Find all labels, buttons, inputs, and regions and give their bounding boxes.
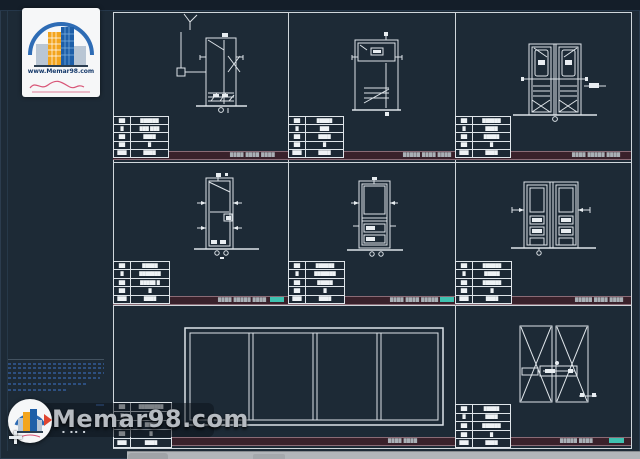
table-row: ████████ xyxy=(114,269,169,277)
table-value-cell: ██████ xyxy=(473,279,511,286)
table-row: ███████ xyxy=(456,405,510,413)
table-key-cell: ███ xyxy=(289,296,306,303)
table-key-cell: ██ xyxy=(456,422,473,430)
table-value-cell: ██████ xyxy=(473,422,510,430)
sheet-border-line xyxy=(113,448,632,449)
table-row: ████████ xyxy=(456,262,511,269)
sheet-border-line xyxy=(113,12,114,449)
table-value-cell: ███ xyxy=(306,125,343,132)
table-value-cell: ████ xyxy=(473,125,510,132)
table-row: ██████ xyxy=(456,269,511,277)
table-key-cell: █ xyxy=(456,414,473,422)
table-value-cell: █████ █ xyxy=(131,279,169,286)
table-key-cell: █ xyxy=(114,270,131,277)
table-row: ███████ █ xyxy=(114,278,169,286)
table-value-cell: ████ xyxy=(473,296,511,303)
table-key-cell: █ xyxy=(456,270,473,277)
sheet-border-line xyxy=(113,12,632,13)
schedule-row xyxy=(8,372,104,374)
watermark-specks: ▪ ▪▪ ▪ xyxy=(62,429,87,434)
table-value-cell: ████ xyxy=(473,439,510,447)
table-key-cell: █ xyxy=(289,270,306,277)
table-key-cell: ███ xyxy=(456,439,473,447)
table-key-cell: ██ xyxy=(289,142,306,149)
table-key-cell: ██ xyxy=(114,262,131,269)
table-key-cell: ██ xyxy=(114,287,131,294)
schedule-row xyxy=(8,389,68,391)
table-row: ███████ xyxy=(114,438,171,447)
table-key-cell: ██ xyxy=(114,133,131,140)
highlight-block xyxy=(270,297,284,302)
table-value-cell: █████ xyxy=(131,262,169,269)
table-row: █████ xyxy=(456,413,510,422)
table-value-cell: ████ xyxy=(473,150,510,157)
sheet-border-line xyxy=(455,12,456,449)
titleblock-table[interactable]: ███████████████████████████ xyxy=(288,116,344,158)
table-row: ████████ xyxy=(114,117,168,124)
table-row: ██████ xyxy=(289,132,343,140)
table-row: ███████ xyxy=(456,438,510,447)
title-strip-text: ████ ████ ████ xyxy=(230,152,275,157)
table-row: ███████ xyxy=(289,117,343,124)
table-row: ████ xyxy=(289,124,343,132)
drawing-double-door-plan[interactable] xyxy=(520,326,597,402)
schedule-top-line xyxy=(8,359,104,360)
table-key-cell: ███ xyxy=(289,150,306,157)
table-key-cell: ██ xyxy=(456,405,473,413)
table-key-cell: ██ xyxy=(114,279,131,286)
table-row: ████████ xyxy=(456,421,510,430)
drawing-single-door-d[interactable] xyxy=(347,177,403,256)
table-value-cell: ████ xyxy=(306,133,343,140)
schedule-row xyxy=(8,383,88,385)
titleblock-table[interactable]: ████████████████████████████████ xyxy=(455,261,512,304)
table-row: ███ xyxy=(289,286,344,294)
drawing-single-door-c[interactable] xyxy=(194,173,259,259)
titleblock-table[interactable]: █████████████████████████████████ xyxy=(288,261,345,304)
table-key-cell: ██ xyxy=(456,262,473,269)
drawing-single-door-b[interactable] xyxy=(352,32,402,116)
table-row: ████████ xyxy=(456,117,510,124)
table-row: █████ xyxy=(456,124,510,132)
table-key-cell: ███ xyxy=(456,150,473,157)
table-value-cell: ████ xyxy=(306,150,343,157)
table-key-cell: █ xyxy=(289,125,306,132)
table-key-cell: █ xyxy=(456,125,473,132)
table-value-cell: ██████ xyxy=(473,262,511,269)
table-value-cell: ████ xyxy=(131,150,168,157)
highlight-block xyxy=(609,438,624,443)
titleblock-table[interactable]: ██████████████████████████████ xyxy=(455,404,511,448)
table-value-cell: █ xyxy=(473,142,510,149)
table-row: ███████ xyxy=(114,149,168,157)
drawing-double-door-a[interactable] xyxy=(513,44,606,121)
table-value-cell: █████ xyxy=(473,270,511,277)
table-value-cell: ████ xyxy=(131,296,169,303)
table-row: ███████ xyxy=(456,295,511,303)
title-strip-text: ████ ████ xyxy=(388,438,417,443)
table-key-cell: ██ xyxy=(289,262,306,269)
title-strip-text: ████ █████ ████ xyxy=(572,152,621,157)
title-strip xyxy=(113,437,631,446)
schedule-row xyxy=(8,377,100,379)
table-value-cell: █████ xyxy=(473,133,510,140)
table-value-cell: █ xyxy=(131,142,168,149)
table-key-cell: ███ xyxy=(114,150,131,157)
table-key-cell: ██ xyxy=(456,117,473,124)
table-value-cell: █████ xyxy=(306,279,344,286)
cad-viewport: ████ ████ ████ █████ ████ ████ ████ ████… xyxy=(0,0,640,459)
title-strip-text: █████ ████ ████ xyxy=(403,152,452,157)
table-value-cell: █████ xyxy=(473,405,510,413)
table-row: ███████ xyxy=(456,149,510,157)
table-value-cell: ██████ xyxy=(306,262,344,269)
table-value-cell: █ xyxy=(131,287,169,294)
table-key-cell: ██ xyxy=(289,133,306,140)
titleblock-table[interactable]: ██████████████████████████████ xyxy=(455,116,511,158)
logo-signature xyxy=(22,78,100,96)
table-value-cell: ██████ xyxy=(131,117,168,124)
table-row: ███ xyxy=(289,141,343,149)
table-value-cell: ████ xyxy=(306,296,344,303)
table-row: ███████ xyxy=(289,295,344,303)
table-key-cell: ███ xyxy=(456,296,473,303)
table-row: ████████ xyxy=(289,269,344,277)
bottom-bar xyxy=(127,451,640,459)
title-strip-text: █████ ████ ████ xyxy=(575,297,624,302)
table-key-cell: █ xyxy=(114,125,131,132)
logo-buildings-graphic xyxy=(22,8,100,68)
table-key-cell: ███ xyxy=(114,296,131,303)
highlight-block xyxy=(440,297,454,302)
title-strip xyxy=(113,296,631,305)
table-value-cell: ███████ xyxy=(131,270,169,277)
table-value-cell: ██████ xyxy=(473,117,510,124)
title-strip-text: ████ ████ █████ xyxy=(390,297,439,302)
table-row: ███████ xyxy=(114,295,169,303)
table-key-cell: ██ xyxy=(456,133,473,140)
title-strip-text: █████ ████ xyxy=(560,438,593,443)
table-value-cell: ████ xyxy=(131,133,168,140)
table-value-cell: █ xyxy=(306,287,344,294)
table-key-cell: ██ xyxy=(114,117,131,124)
red-chevron-icon xyxy=(44,414,52,426)
table-row: ███ xyxy=(114,286,169,294)
table-row: ████ ███ xyxy=(114,124,168,132)
logo-url-text: www.Memar98.com xyxy=(22,68,100,75)
table-key-cell: ██ xyxy=(289,287,306,294)
table-row: ███ xyxy=(114,141,168,149)
title-strip-text: ████ █████ ████ xyxy=(218,297,267,302)
table-key-cell: ███ xyxy=(114,439,131,447)
table-value-cell: ███████ xyxy=(306,270,344,277)
table-value-cell: █ xyxy=(473,431,510,439)
table-row: ███████ xyxy=(289,149,343,157)
table-row: ███████ xyxy=(114,262,169,269)
table-key-cell: ██ xyxy=(456,431,473,439)
schedule-row xyxy=(8,367,104,369)
table-key-cell: ██ xyxy=(289,117,306,124)
table-key-cell: ██ xyxy=(289,279,306,286)
table-row: ███ xyxy=(456,286,511,294)
table-value-cell: █ xyxy=(306,142,343,149)
table-value-cell: █████ xyxy=(306,117,343,124)
table-key-cell: ██ xyxy=(456,279,473,286)
schedule-row xyxy=(8,363,104,365)
sheet-border-line xyxy=(113,162,632,163)
table-row: ███ xyxy=(456,141,510,149)
table-row: ███ xyxy=(456,430,510,439)
sheet-border-line xyxy=(631,12,632,449)
title-strip xyxy=(113,151,631,160)
table-value-cell: ███ ███ xyxy=(131,125,168,132)
table-key-cell: ██ xyxy=(114,142,131,149)
table-row: ███████ xyxy=(456,132,510,140)
titleblock-table[interactable]: ██████████████████████ ███████████ xyxy=(113,261,170,304)
table-key-cell: ██ xyxy=(456,287,473,294)
drawing-double-door-b[interactable] xyxy=(511,182,596,255)
table-row: ██████ xyxy=(114,132,168,140)
table-value-cell: ████ xyxy=(473,414,510,422)
table-row: ████████ xyxy=(289,262,344,269)
table-row: ███████ xyxy=(289,278,344,286)
sheet-border-line xyxy=(113,305,632,306)
logo-card: www.Memar98.com xyxy=(22,8,100,97)
drawing-single-door-a[interactable] xyxy=(177,14,247,113)
table-value-cell: █ xyxy=(473,287,511,294)
titleblock-table[interactable]: ████████████ ███████████████████ xyxy=(113,116,169,158)
crosshair-plus-icon xyxy=(9,431,22,444)
bottom-bar-tab[interactable] xyxy=(253,454,285,459)
table-value-cell: ████ xyxy=(131,439,171,447)
table-key-cell: ██ xyxy=(456,142,473,149)
table-row: ████████ xyxy=(456,278,511,286)
bottom-bar-tab[interactable] xyxy=(128,453,168,459)
